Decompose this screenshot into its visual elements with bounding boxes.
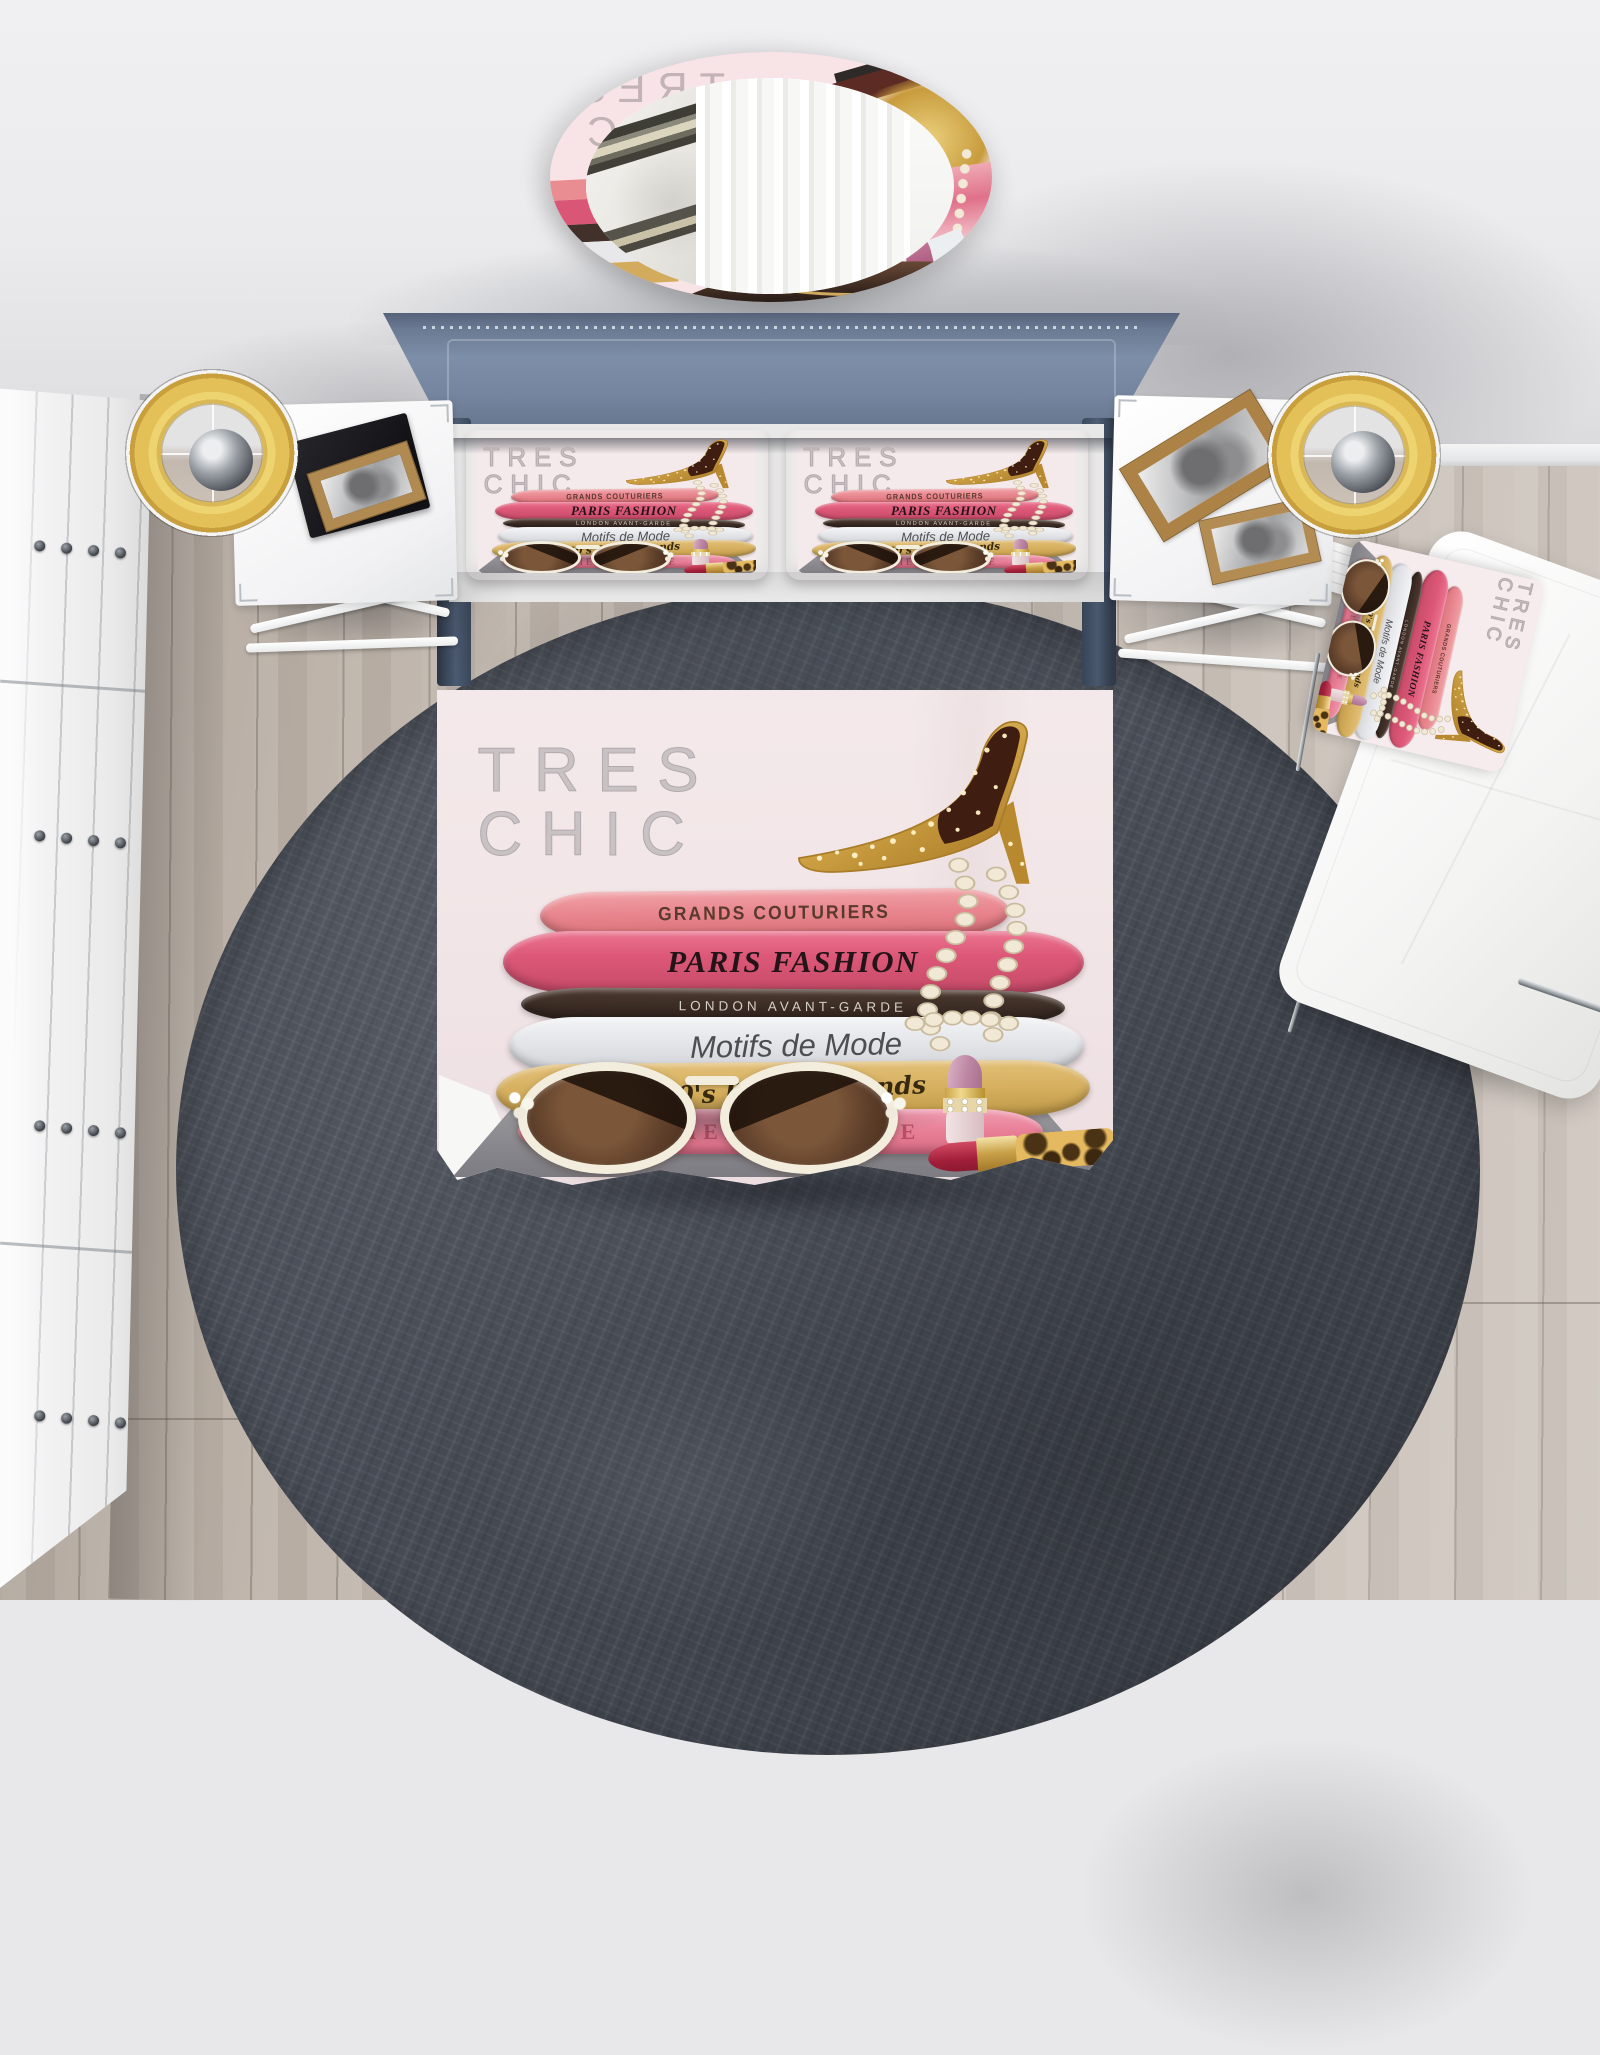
drawer-knob	[61, 542, 73, 554]
drawer-knob	[114, 837, 126, 849]
sunglasses-right-lens	[911, 541, 990, 573]
curtain-reflection	[696, 78, 909, 294]
pillow-left: TRES CHIC GRANDS COUTURIERS PARIS FASHIO…	[466, 430, 768, 580]
sunglasses-left-lens	[518, 1062, 696, 1174]
drawer-knob	[88, 835, 100, 847]
lipstick-red-tip	[1003, 565, 1027, 573]
nailhead-trim	[423, 326, 1140, 329]
duvet-cover: TRES CHIC GRANDS COUTURIERS PARIS FASHIO…	[437, 690, 1113, 1190]
rug-texture	[476, 1345, 896, 1645]
drawer-knob	[88, 1125, 100, 1137]
rhinestone-cluster	[816, 548, 831, 563]
drawer-knob-row	[34, 828, 153, 854]
gold-drum-lamp-right	[1266, 370, 1442, 540]
lamp-gold-shade	[124, 368, 300, 538]
oval-mirror-art: TRES CHIC	[550, 52, 992, 302]
drawer-knob	[114, 1417, 126, 1429]
chrome-corner	[435, 578, 453, 596]
lipstick-upright-icon	[1011, 539, 1030, 565]
sunglasses-icon	[502, 539, 674, 572]
sunglasses-bridge	[685, 1076, 739, 1086]
pillow-left-print: TRES CHIC GRANDS COUTURIERS PARIS FASHIO…	[478, 438, 756, 573]
framed-photo	[1138, 408, 1276, 523]
drawer-knob	[34, 1120, 46, 1132]
drawer-knob	[61, 832, 73, 844]
drawer-knob	[114, 1127, 126, 1139]
rhinestone-cluster	[661, 548, 676, 563]
drawer-knob	[34, 1410, 46, 1422]
sunglasses-left-lens	[502, 541, 581, 573]
drawer-knob	[34, 540, 46, 552]
chrome-corner	[239, 583, 257, 601]
gold-drum-lamp-left	[124, 368, 300, 538]
drawer-knob	[61, 1122, 73, 1134]
lipstick-upright-icon	[943, 1055, 987, 1143]
rhinestone-cluster	[876, 1087, 912, 1123]
headboard-piping	[447, 339, 1116, 431]
dresser-seam	[0, 1242, 154, 1256]
sunglasses-icon	[822, 539, 994, 572]
rhinestone-cluster	[496, 548, 511, 563]
drawer-knob	[114, 547, 126, 559]
lamp-gold-shade	[1266, 370, 1442, 540]
lipstick-red-tip	[683, 565, 707, 573]
rhinestone-cluster	[504, 1087, 540, 1123]
drawer-knob	[34, 830, 46, 842]
leopard-cap	[1042, 559, 1075, 572]
sunglasses-right-lens	[720, 1062, 898, 1174]
pillow-right: TRES CHIC GRANDS COUTURIERS PARIS FASHIO…	[786, 430, 1088, 580]
sunglasses-bridge	[896, 545, 920, 549]
drawer-knob	[88, 545, 100, 557]
leopard-cap	[722, 559, 755, 572]
drawer-knob-row	[34, 538, 153, 564]
sunglasses-icon	[518, 1057, 906, 1179]
lipstick-bullet	[693, 539, 708, 550]
pillow-right-print: TRES CHIC GRANDS COUTURIERS PARIS FASHIO…	[798, 438, 1076, 573]
rug-texture	[1076, 1735, 1536, 2055]
sunglasses-bridge	[576, 545, 600, 549]
lipstick-upright-icon	[691, 539, 710, 565]
rhinestone-cluster	[981, 548, 996, 563]
lipstick-red-tip	[927, 1141, 981, 1174]
mirror-glass	[586, 78, 954, 294]
chrome-corner	[1113, 578, 1131, 596]
lipstick-bullet	[948, 1055, 981, 1090]
fashion-print: TRES CHIC GRANDS COUTURIERS PARIS FASHIO…	[478, 438, 756, 573]
chrome-corner	[1118, 399, 1136, 417]
chrome-corner	[430, 404, 448, 422]
sunglasses-bridge	[1371, 614, 1378, 631]
bedroom-overhead-scene: TRES CHIC TRES	[0, 0, 1600, 1600]
fashion-print: TRES CHIC GRANDS COUTURIERS PARIS FASHIO…	[798, 438, 1076, 573]
lipstick-bullet	[1013, 539, 1028, 550]
sunglasses-left-lens	[822, 541, 901, 573]
lipstick-ferrule	[1025, 563, 1044, 573]
chrome-corner	[1309, 583, 1327, 601]
rhinestone-cluster	[1347, 669, 1360, 682]
duvet-print: TRES CHIC GRANDS COUTURIERS PARIS FASHIO…	[465, 716, 1090, 1168]
dresser-seam	[0, 680, 154, 694]
sunglasses-right-lens	[591, 541, 670, 573]
rhinestone-band	[943, 1098, 987, 1113]
drawer-knob	[88, 1415, 100, 1427]
fashion-print: TRES CHIC GRANDS COUTURIERS PARIS FASHIO…	[465, 716, 1090, 1168]
lipstick-ferrule	[705, 563, 724, 573]
drawer-knob	[61, 1412, 73, 1424]
